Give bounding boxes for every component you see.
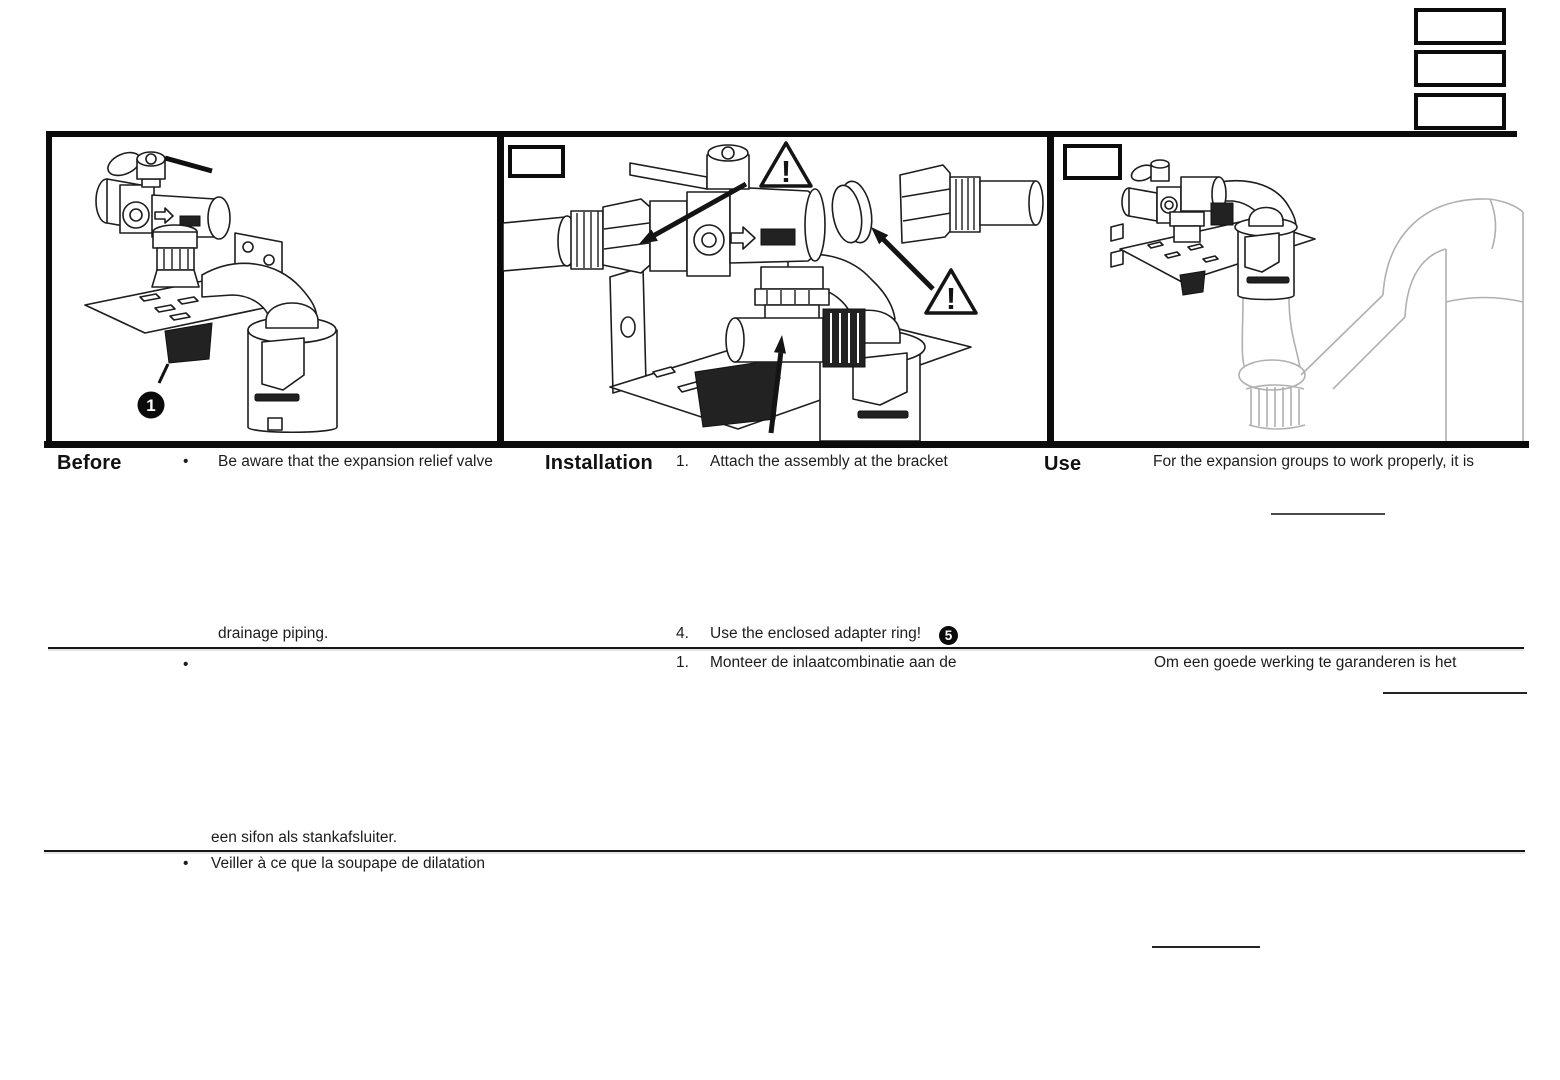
blank-underline	[1152, 946, 1260, 948]
before-bullet-1-lastline: drainage piping.	[218, 625, 328, 643]
svg-text:!: !	[946, 281, 956, 316]
use-heading: Use	[1044, 453, 1081, 476]
use-figure-box	[1063, 144, 1122, 180]
bullet-marker: •	[183, 855, 188, 873]
installation-step-1-text: Attach the assembly at the bracket	[710, 453, 948, 471]
adapter-ring	[828, 179, 876, 245]
use-paragraph-en: For the expansion groups to work properl…	[1153, 453, 1474, 471]
top-right-box-1	[1414, 8, 1506, 45]
installation-step-4-text: Use the enclosed adapter ring!	[710, 625, 921, 643]
before-bullet-1-text: Be aware that the expansion relief valve	[218, 453, 493, 471]
top-right-box-2	[1414, 50, 1506, 87]
frame-bottom-border	[44, 441, 1529, 448]
blank-underline	[1383, 692, 1527, 694]
installation-step-nl-text: Monteer de inlaatcombinatie aan de	[710, 654, 956, 672]
document-page: 1	[0, 0, 1560, 1080]
step-number: 4.	[676, 625, 689, 643]
before-bullet-2-lastline: een sifon als stankafsluiter.	[211, 829, 397, 847]
installation-heading: Installation	[545, 452, 653, 475]
use-paragraph-nl: Om een goede werking te garanderen is he…	[1154, 654, 1456, 672]
pointer-line	[165, 158, 212, 171]
installation-figure-box	[508, 145, 565, 178]
outlet-pipe-right	[900, 165, 1043, 243]
callout-1-badge: 1	[138, 392, 165, 419]
tundish-cup	[1235, 208, 1297, 300]
section-rule-1	[48, 647, 1524, 649]
warning-triangle-icon: !	[926, 270, 976, 316]
bullet-marker: •	[183, 453, 188, 471]
warning-triangle-icon: !	[761, 143, 811, 189]
step-number: 1.	[676, 654, 689, 672]
threaded-outlet	[165, 323, 212, 363]
svg-text:!: !	[781, 154, 791, 189]
before-figure-drawing: 1	[52, 137, 497, 441]
use-figure	[1053, 137, 1529, 441]
before-bullet-3-text: Veiller à ce que la soupape de dilatatio…	[211, 855, 485, 873]
callout-5-badge: 5	[939, 626, 958, 645]
blank-underline	[1271, 513, 1385, 515]
step-number: 1.	[676, 453, 689, 471]
callout-leader-line	[159, 364, 168, 383]
before-figure: 1	[52, 137, 497, 441]
bullet-marker: •	[183, 656, 188, 674]
top-right-box-3	[1414, 93, 1506, 130]
installation-figure: ! !	[503, 137, 1047, 441]
relief-valve-cartridge	[726, 309, 865, 367]
before-heading: Before	[57, 452, 122, 475]
section-rule-2	[44, 850, 1525, 852]
use-figure-drawing	[1053, 137, 1529, 441]
supply-pipe-left	[503, 199, 687, 273]
installation-figure-drawing: ! !	[503, 137, 1047, 441]
svg-text:1: 1	[146, 396, 155, 415]
tundish-cup	[248, 303, 337, 432]
